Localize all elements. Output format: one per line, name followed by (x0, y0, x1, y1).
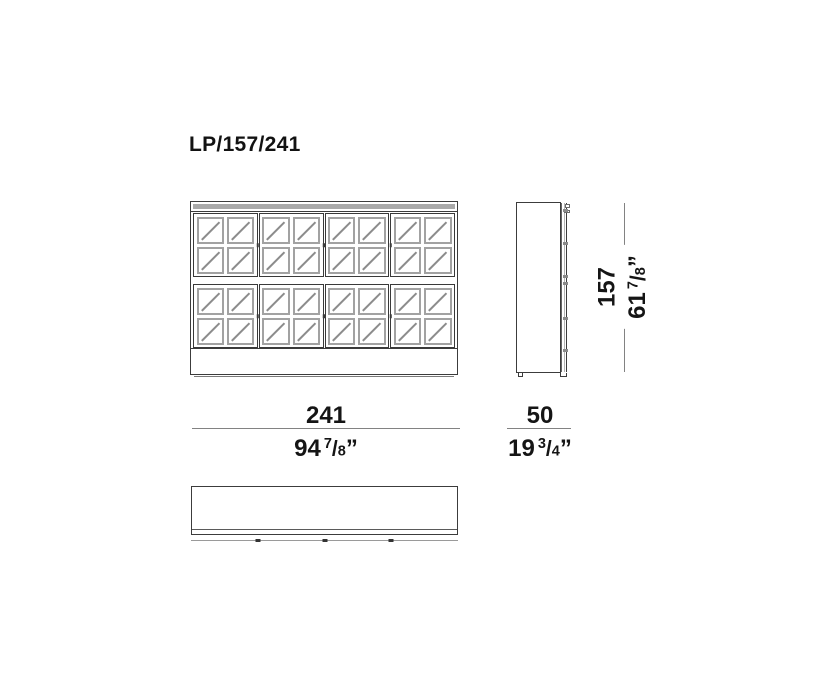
plan-door-division-tick (322, 539, 327, 542)
glass-door-module (390, 284, 455, 348)
side-elevation-view (516, 202, 561, 373)
glass-pane (227, 247, 254, 274)
cabinet-plinth (191, 348, 457, 374)
hinge-mark (563, 275, 568, 278)
plan-door-division-tick (255, 539, 260, 542)
glass-pane (293, 247, 320, 274)
dimension-line-depth (507, 428, 571, 429)
side-foot (560, 373, 567, 377)
glass-pane (293, 288, 320, 315)
door-latch-dot (323, 314, 326, 318)
glass-pane (227, 288, 254, 315)
glass-pane (358, 217, 385, 244)
plan-doors-line (191, 540, 458, 542)
hinge-mark (563, 349, 568, 352)
door-latch-dot (256, 314, 259, 318)
glass-pane (358, 318, 385, 345)
door-latch-dot (256, 243, 259, 247)
glass-door-module (325, 213, 390, 277)
glass-pane (262, 288, 289, 315)
cabinet-top-edge (191, 202, 457, 212)
technical-drawing-page: LP/157/241 157 617/8” 241 947/8” 50 19 (0, 0, 840, 679)
dimension-label-depth-metric: 50 (499, 404, 581, 428)
hinge-mark (563, 317, 568, 320)
glass-pane (197, 288, 224, 315)
door-row-upper (191, 213, 457, 277)
glass-door-module (193, 213, 258, 277)
door-latch-dot (323, 243, 326, 247)
height-metric: 157 (594, 255, 620, 319)
glass-pane (197, 247, 224, 274)
dimension-line-width (192, 428, 460, 429)
door-row-lower (191, 284, 457, 348)
plan-front-edge (192, 529, 457, 535)
glass-pane (262, 247, 289, 274)
front-elevation-view (190, 201, 458, 375)
glass-door-module (259, 213, 324, 277)
dimension-label-height: 157 617/8” (591, 245, 657, 329)
glass-pane (293, 318, 320, 345)
glass-pane (262, 318, 289, 345)
glass-pane (394, 318, 421, 345)
hinge-mark (563, 209, 568, 212)
glass-pane (197, 318, 224, 345)
glass-pane (262, 217, 289, 244)
glass-pane (227, 217, 254, 244)
side-top-trim (565, 204, 570, 208)
door-latch-dot (389, 314, 392, 318)
plan-door-division-tick (389, 539, 394, 542)
height-imperial: 617/8” (620, 255, 654, 319)
glass-pane (424, 288, 451, 315)
hinge-mark (563, 242, 568, 245)
glass-pane (358, 288, 385, 315)
glass-pane (394, 217, 421, 244)
glass-pane (227, 318, 254, 345)
front-base-line (194, 376, 454, 377)
glass-door-module (325, 284, 390, 348)
glass-door-module (390, 213, 455, 277)
row-divider (191, 277, 457, 283)
glass-pane (328, 247, 355, 274)
glass-pane (394, 288, 421, 315)
dimension-label-width-imperial: 947/8” (192, 432, 460, 464)
hinge-mark (563, 282, 568, 285)
glass-pane (424, 247, 451, 274)
door-latch-dot (389, 243, 392, 247)
dimension-label-depth-imperial: 193/4” (499, 432, 581, 464)
glass-pane (328, 318, 355, 345)
glass-pane (424, 217, 451, 244)
glass-pane (328, 217, 355, 244)
glass-pane (328, 288, 355, 315)
cabinet-top-bar (193, 204, 455, 209)
glass-pane (424, 318, 451, 345)
side-foot (518, 373, 523, 377)
glass-pane (394, 247, 421, 274)
glass-door-module (259, 284, 324, 348)
side-door-profile (561, 203, 567, 372)
glass-pane (293, 217, 320, 244)
page-title: LP/157/241 (189, 133, 301, 157)
dimension-label-width-metric: 241 (192, 404, 460, 428)
glass-pane (358, 247, 385, 274)
glass-pane (197, 217, 224, 244)
plan-view (191, 486, 458, 535)
glass-door-module (193, 284, 258, 348)
